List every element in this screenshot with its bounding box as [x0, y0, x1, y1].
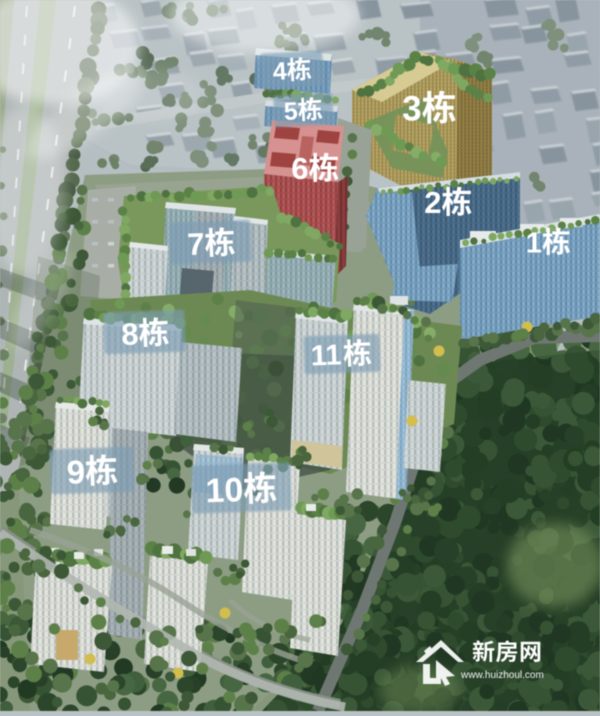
svg-text:2: 2	[424, 185, 441, 220]
svg-text:8: 8	[121, 316, 139, 352]
svg-text:6: 6	[291, 151, 308, 186]
svg-text:7: 7	[187, 226, 205, 262]
svg-text:1: 1	[526, 227, 542, 259]
svg-text:10: 10	[205, 471, 244, 510]
svg-text:9: 9	[66, 453, 86, 491]
svg-text:5: 5	[283, 97, 298, 126]
svg-text:11: 11	[310, 339, 342, 372]
svg-text:3: 3	[402, 90, 421, 129]
svg-text:4: 4	[272, 57, 287, 86]
svg-text:www.huizhoul.com: www.huizhoul.com	[460, 670, 544, 681]
